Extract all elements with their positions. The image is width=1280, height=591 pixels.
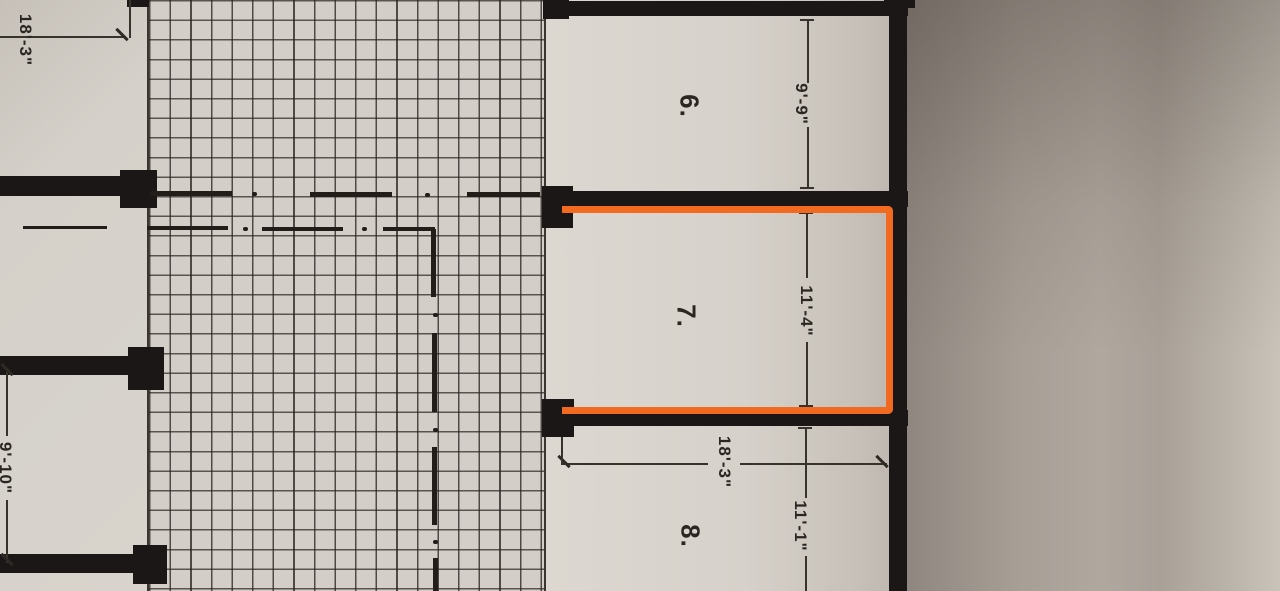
dimension-line — [6, 500, 8, 563]
room-number-label: 6. — [674, 94, 705, 118]
centerline-dot — [252, 192, 257, 196]
dashed-line-segment — [432, 447, 437, 525]
wall-segment — [570, 191, 908, 207]
dimension-line — [6, 372, 8, 436]
dashed-line-segment — [262, 227, 343, 231]
wall-segment — [0, 176, 128, 196]
room-number-label: 8. — [675, 524, 706, 548]
dimension-line — [805, 556, 807, 591]
wall-pier — [133, 545, 167, 584]
paper-background-right — [906, 0, 1280, 591]
dimension-label: 11'-1" — [790, 500, 810, 551]
dashed-line-segment — [310, 192, 392, 197]
centerline-dot — [425, 193, 430, 197]
dimension-label: 18'-3" — [714, 436, 734, 488]
dimension-label: 9'-10" — [0, 442, 15, 494]
centerline-dot — [362, 227, 367, 231]
paper-background-left — [0, 0, 148, 591]
tiled-floor-grid — [147, 0, 546, 591]
centerline-dot — [243, 227, 248, 231]
wall-segment — [0, 356, 131, 375]
dimension-tick — [800, 19, 814, 21]
floor-plan-photo: 18'-3" 6. 9'-9" 7. 11'-4" 8. 18'-3" 11'-… — [0, 0, 1280, 591]
centerline-dot — [433, 428, 438, 432]
dashed-line-segment — [433, 558, 438, 591]
centerline-dot — [433, 313, 438, 317]
dashed-line-segment — [431, 229, 436, 297]
wall-pier — [120, 170, 157, 208]
dimension-line — [805, 428, 807, 498]
dimension-line — [740, 463, 887, 465]
wall-segment — [560, 1, 908, 16]
dashed-line-segment — [432, 333, 437, 412]
dimension-line — [562, 463, 708, 465]
dashed-line-segment — [150, 191, 232, 196]
room7-highlight-rectangle — [562, 206, 893, 414]
dashed-line-segment — [23, 226, 107, 229]
dashed-line-segment — [147, 226, 228, 230]
centerline-dot — [433, 540, 438, 544]
dimension-tick — [800, 187, 814, 189]
wall-pier — [884, 0, 915, 8]
wall-pier — [128, 347, 164, 390]
extension-line — [561, 437, 563, 465]
dimension-label: 18'-3" — [15, 14, 35, 66]
dimension-line — [807, 20, 809, 83]
wall-segment — [0, 554, 135, 573]
dimension-tick — [798, 427, 812, 429]
extension-line — [129, 0, 131, 38]
dashed-line-segment — [383, 227, 435, 231]
dimension-label: 9'-9" — [791, 83, 811, 125]
dashed-line-segment — [467, 192, 540, 197]
dimension-line — [807, 127, 809, 189]
